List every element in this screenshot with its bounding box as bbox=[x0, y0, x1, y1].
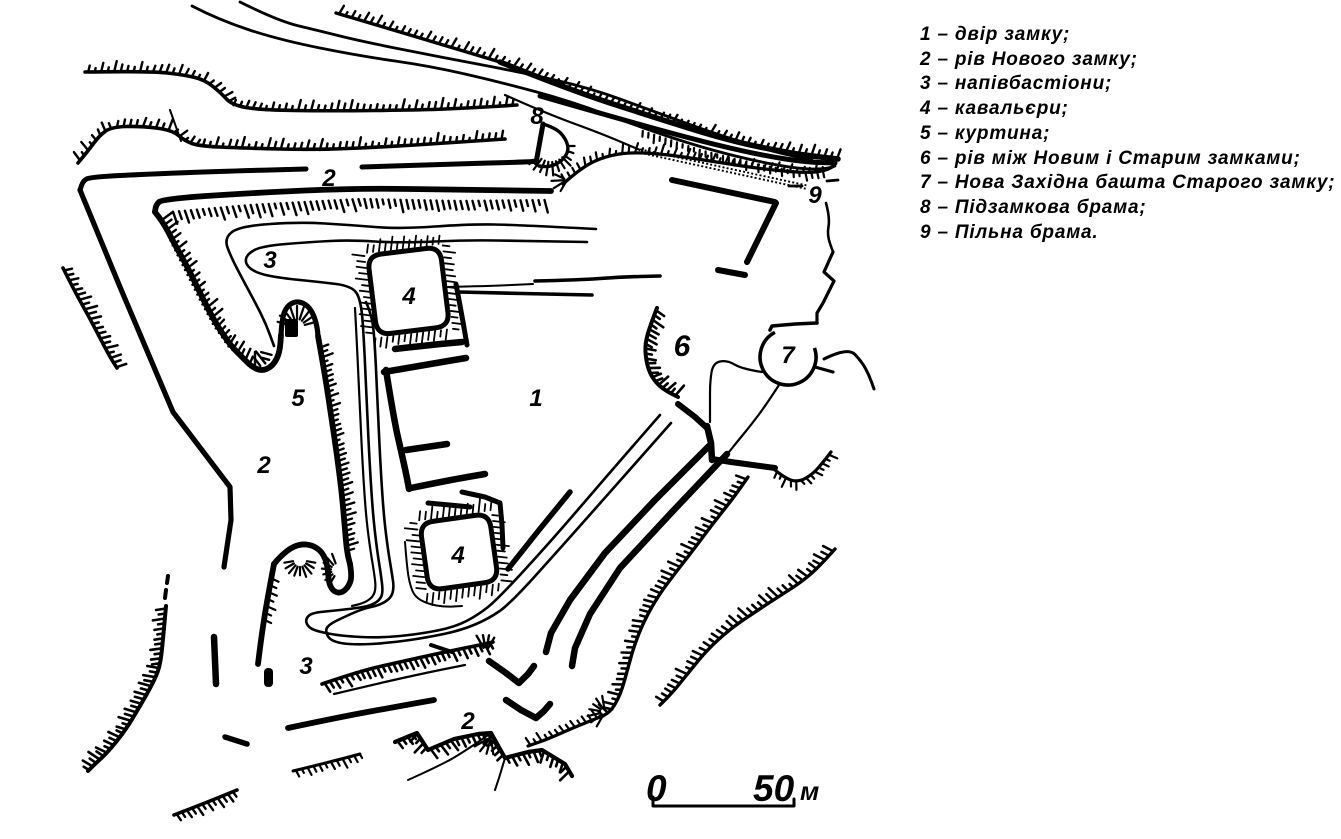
svg-text:9: 9 bbox=[808, 182, 822, 209]
svg-text:2: 2 bbox=[460, 708, 475, 735]
svg-text:7: 7 bbox=[781, 342, 796, 369]
svg-text:8: 8 bbox=[530, 103, 544, 130]
svg-text:0: 0 bbox=[646, 768, 667, 809]
svg-text:50: 50 bbox=[753, 768, 795, 809]
svg-text:5: 5 bbox=[291, 385, 305, 412]
svg-text:1: 1 bbox=[529, 385, 542, 412]
svg-text:2: 2 bbox=[321, 165, 336, 192]
svg-text:4: 4 bbox=[401, 283, 415, 310]
svg-text:4: 4 bbox=[450, 542, 464, 569]
svg-text:м: м bbox=[800, 776, 819, 806]
svg-text:3: 3 bbox=[263, 247, 277, 274]
svg-text:2: 2 bbox=[256, 452, 271, 479]
svg-text:3: 3 bbox=[299, 653, 313, 680]
svg-text:6: 6 bbox=[674, 330, 691, 363]
